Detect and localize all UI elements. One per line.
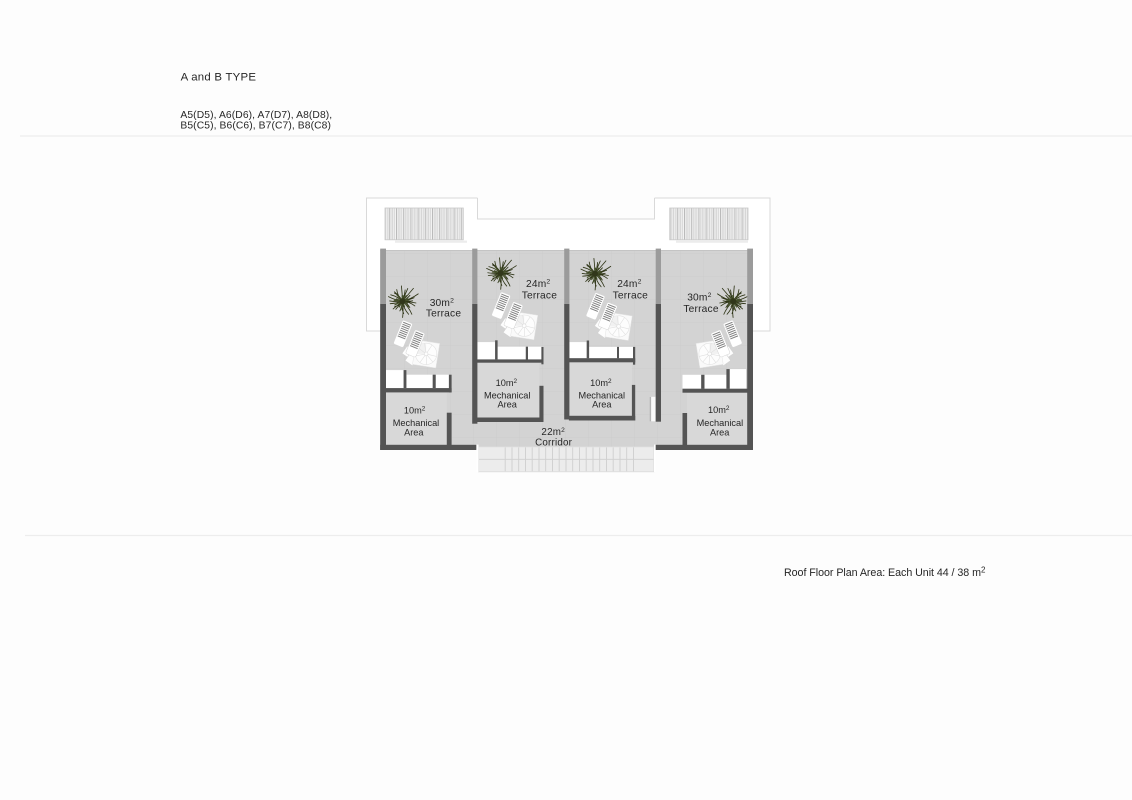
svg-text:Area: Area	[497, 399, 517, 409]
svg-text:Area: Area	[592, 399, 612, 409]
svg-text:Mechanical: Mechanical	[393, 418, 439, 428]
svg-text:Terrace: Terrace	[613, 291, 649, 302]
svg-text:A5(D5), A6(D6), A7(D7), A8(D8): A5(D5), A6(D6), A7(D7), A8(D8),	[180, 110, 332, 121]
svg-text:A and B TYPE: A and B TYPE	[181, 71, 257, 83]
svg-text:Area: Area	[404, 428, 424, 438]
svg-text:Corridor: Corridor	[535, 437, 573, 448]
svg-text:Roof Floor Plan Area: Each Uni: Roof Floor Plan Area: Each Unit 44 / 38 …	[784, 566, 986, 580]
svg-text:B5(C5), B6(C6), B7(C7), B8(C8): B5(C5), B6(C6), B7(C7), B8(C8)	[180, 121, 331, 132]
svg-text:Mechanical: Mechanical	[697, 418, 743, 428]
svg-text:Terrace: Terrace	[522, 290, 558, 301]
svg-text:Area: Area	[710, 428, 730, 438]
svg-text:Terrace: Terrace	[683, 304, 719, 315]
svg-text:Terrace: Terrace	[426, 308, 462, 319]
